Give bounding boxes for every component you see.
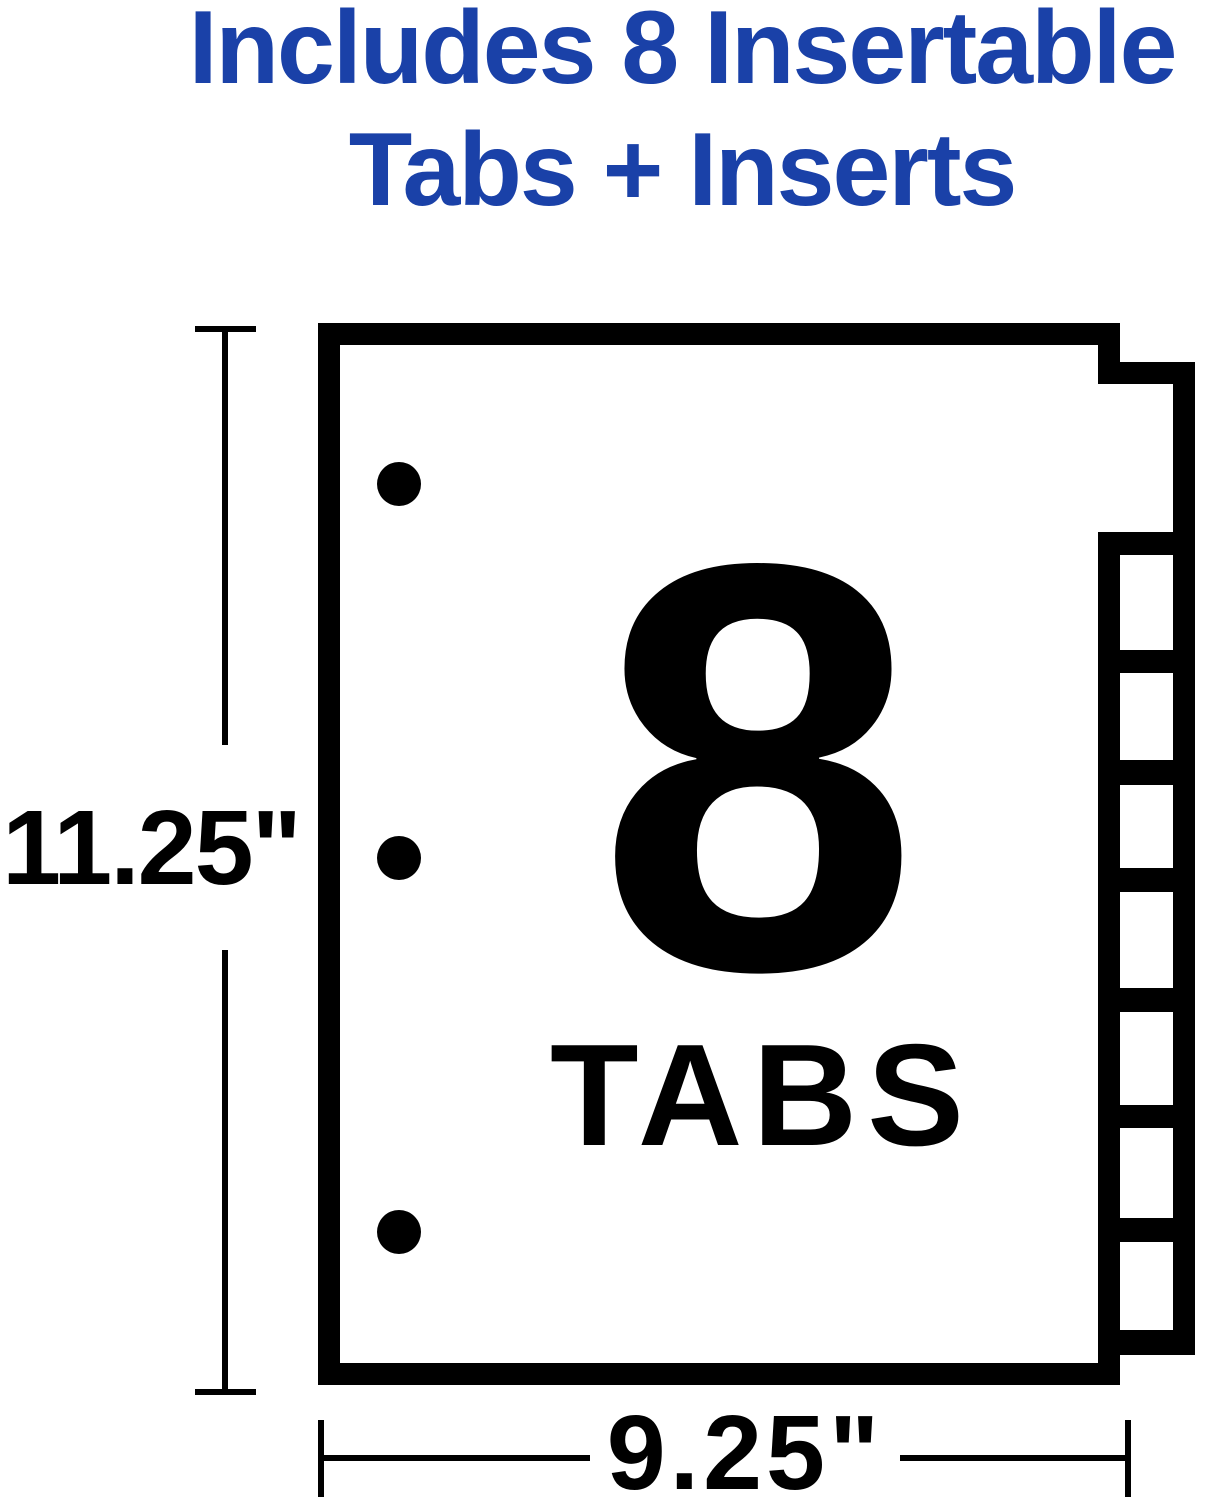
tab-count-number: 8 bbox=[597, 443, 920, 1091]
width-dim-label: 9.25" bbox=[607, 1394, 884, 1500]
tab-slot bbox=[1120, 555, 1173, 650]
tab-slot bbox=[1120, 673, 1173, 760]
punch-hole bbox=[377, 836, 421, 880]
tab-slot bbox=[1120, 1012, 1173, 1105]
punch-hole bbox=[377, 1210, 421, 1254]
punch-hole bbox=[377, 462, 421, 506]
height-dim-label: 11.25" bbox=[2, 789, 300, 907]
tab-slot bbox=[1120, 1242, 1173, 1330]
divider-diagram: 8 TABS 11.25" 9.25" bbox=[0, 0, 1224, 1500]
product-image: Includes 8 Insertable Tabs + Inserts 8 T… bbox=[0, 0, 1224, 1500]
tab-slot bbox=[1120, 892, 1173, 988]
tab-slot bbox=[1120, 1128, 1173, 1218]
tab-count-caption: TABS bbox=[550, 1014, 974, 1176]
tab-slot bbox=[1120, 785, 1173, 868]
